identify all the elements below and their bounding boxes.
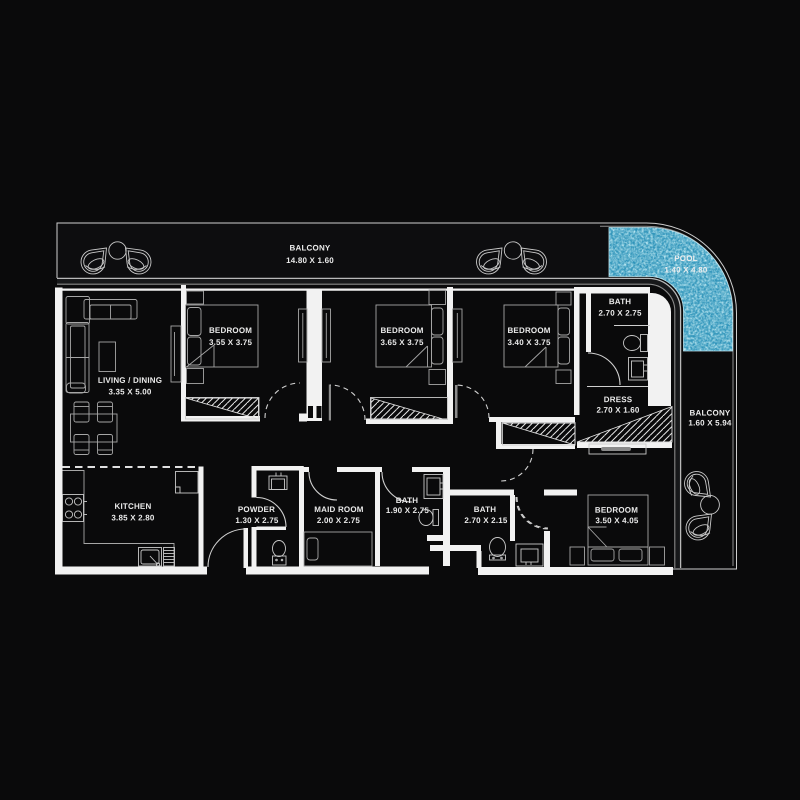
svg-text:14.80 X 1.60: 14.80 X 1.60 xyxy=(286,256,334,265)
svg-text:3.50 X 4.05: 3.50 X 4.05 xyxy=(595,516,638,525)
svg-text:DRESS: DRESS xyxy=(604,395,633,404)
svg-text:3.85 X 2.80: 3.85 X 2.80 xyxy=(111,513,154,522)
svg-text:3.65 X 3.75: 3.65 X 3.75 xyxy=(380,338,423,347)
svg-text:BALCONY: BALCONY xyxy=(290,243,331,252)
svg-text:1.30 X 2.75: 1.30 X 2.75 xyxy=(235,516,278,525)
svg-text:3.40 X 3.75: 3.40 X 3.75 xyxy=(507,338,550,347)
svg-text:1.60 X 5.94: 1.60 X 5.94 xyxy=(688,418,731,427)
svg-text:KITCHEN: KITCHEN xyxy=(114,502,151,511)
svg-text:POWDER: POWDER xyxy=(238,505,275,514)
svg-text:3.35 X 5.00: 3.35 X 5.00 xyxy=(108,387,151,396)
svg-text:2.70 X 2.15: 2.70 X 2.15 xyxy=(464,516,507,525)
svg-text:POOL: POOL xyxy=(674,254,697,263)
svg-text:MAID ROOM: MAID ROOM xyxy=(314,505,363,514)
svg-text:BATH: BATH xyxy=(396,496,418,505)
svg-text:2.70 X 2.75: 2.70 X 2.75 xyxy=(598,309,641,318)
svg-text:2.70 X 1.60: 2.70 X 1.60 xyxy=(596,406,639,415)
svg-text:BEDROOM: BEDROOM xyxy=(209,326,252,335)
svg-text:3.55 X 3.75: 3.55 X 3.75 xyxy=(209,338,252,347)
svg-text:BALCONY: BALCONY xyxy=(690,408,731,417)
svg-text:LIVING / DINING: LIVING / DINING xyxy=(98,376,162,385)
svg-text:2.00 X 2.75: 2.00 X 2.75 xyxy=(317,516,360,525)
svg-text:BATH: BATH xyxy=(609,297,631,306)
svg-text:1.40 X 4.80: 1.40 X 4.80 xyxy=(664,265,707,274)
svg-text:BEDROOM: BEDROOM xyxy=(380,326,423,335)
svg-text:BEDROOM: BEDROOM xyxy=(595,506,638,515)
svg-text:BEDROOM: BEDROOM xyxy=(507,326,550,335)
svg-text:BATH: BATH xyxy=(474,505,496,514)
